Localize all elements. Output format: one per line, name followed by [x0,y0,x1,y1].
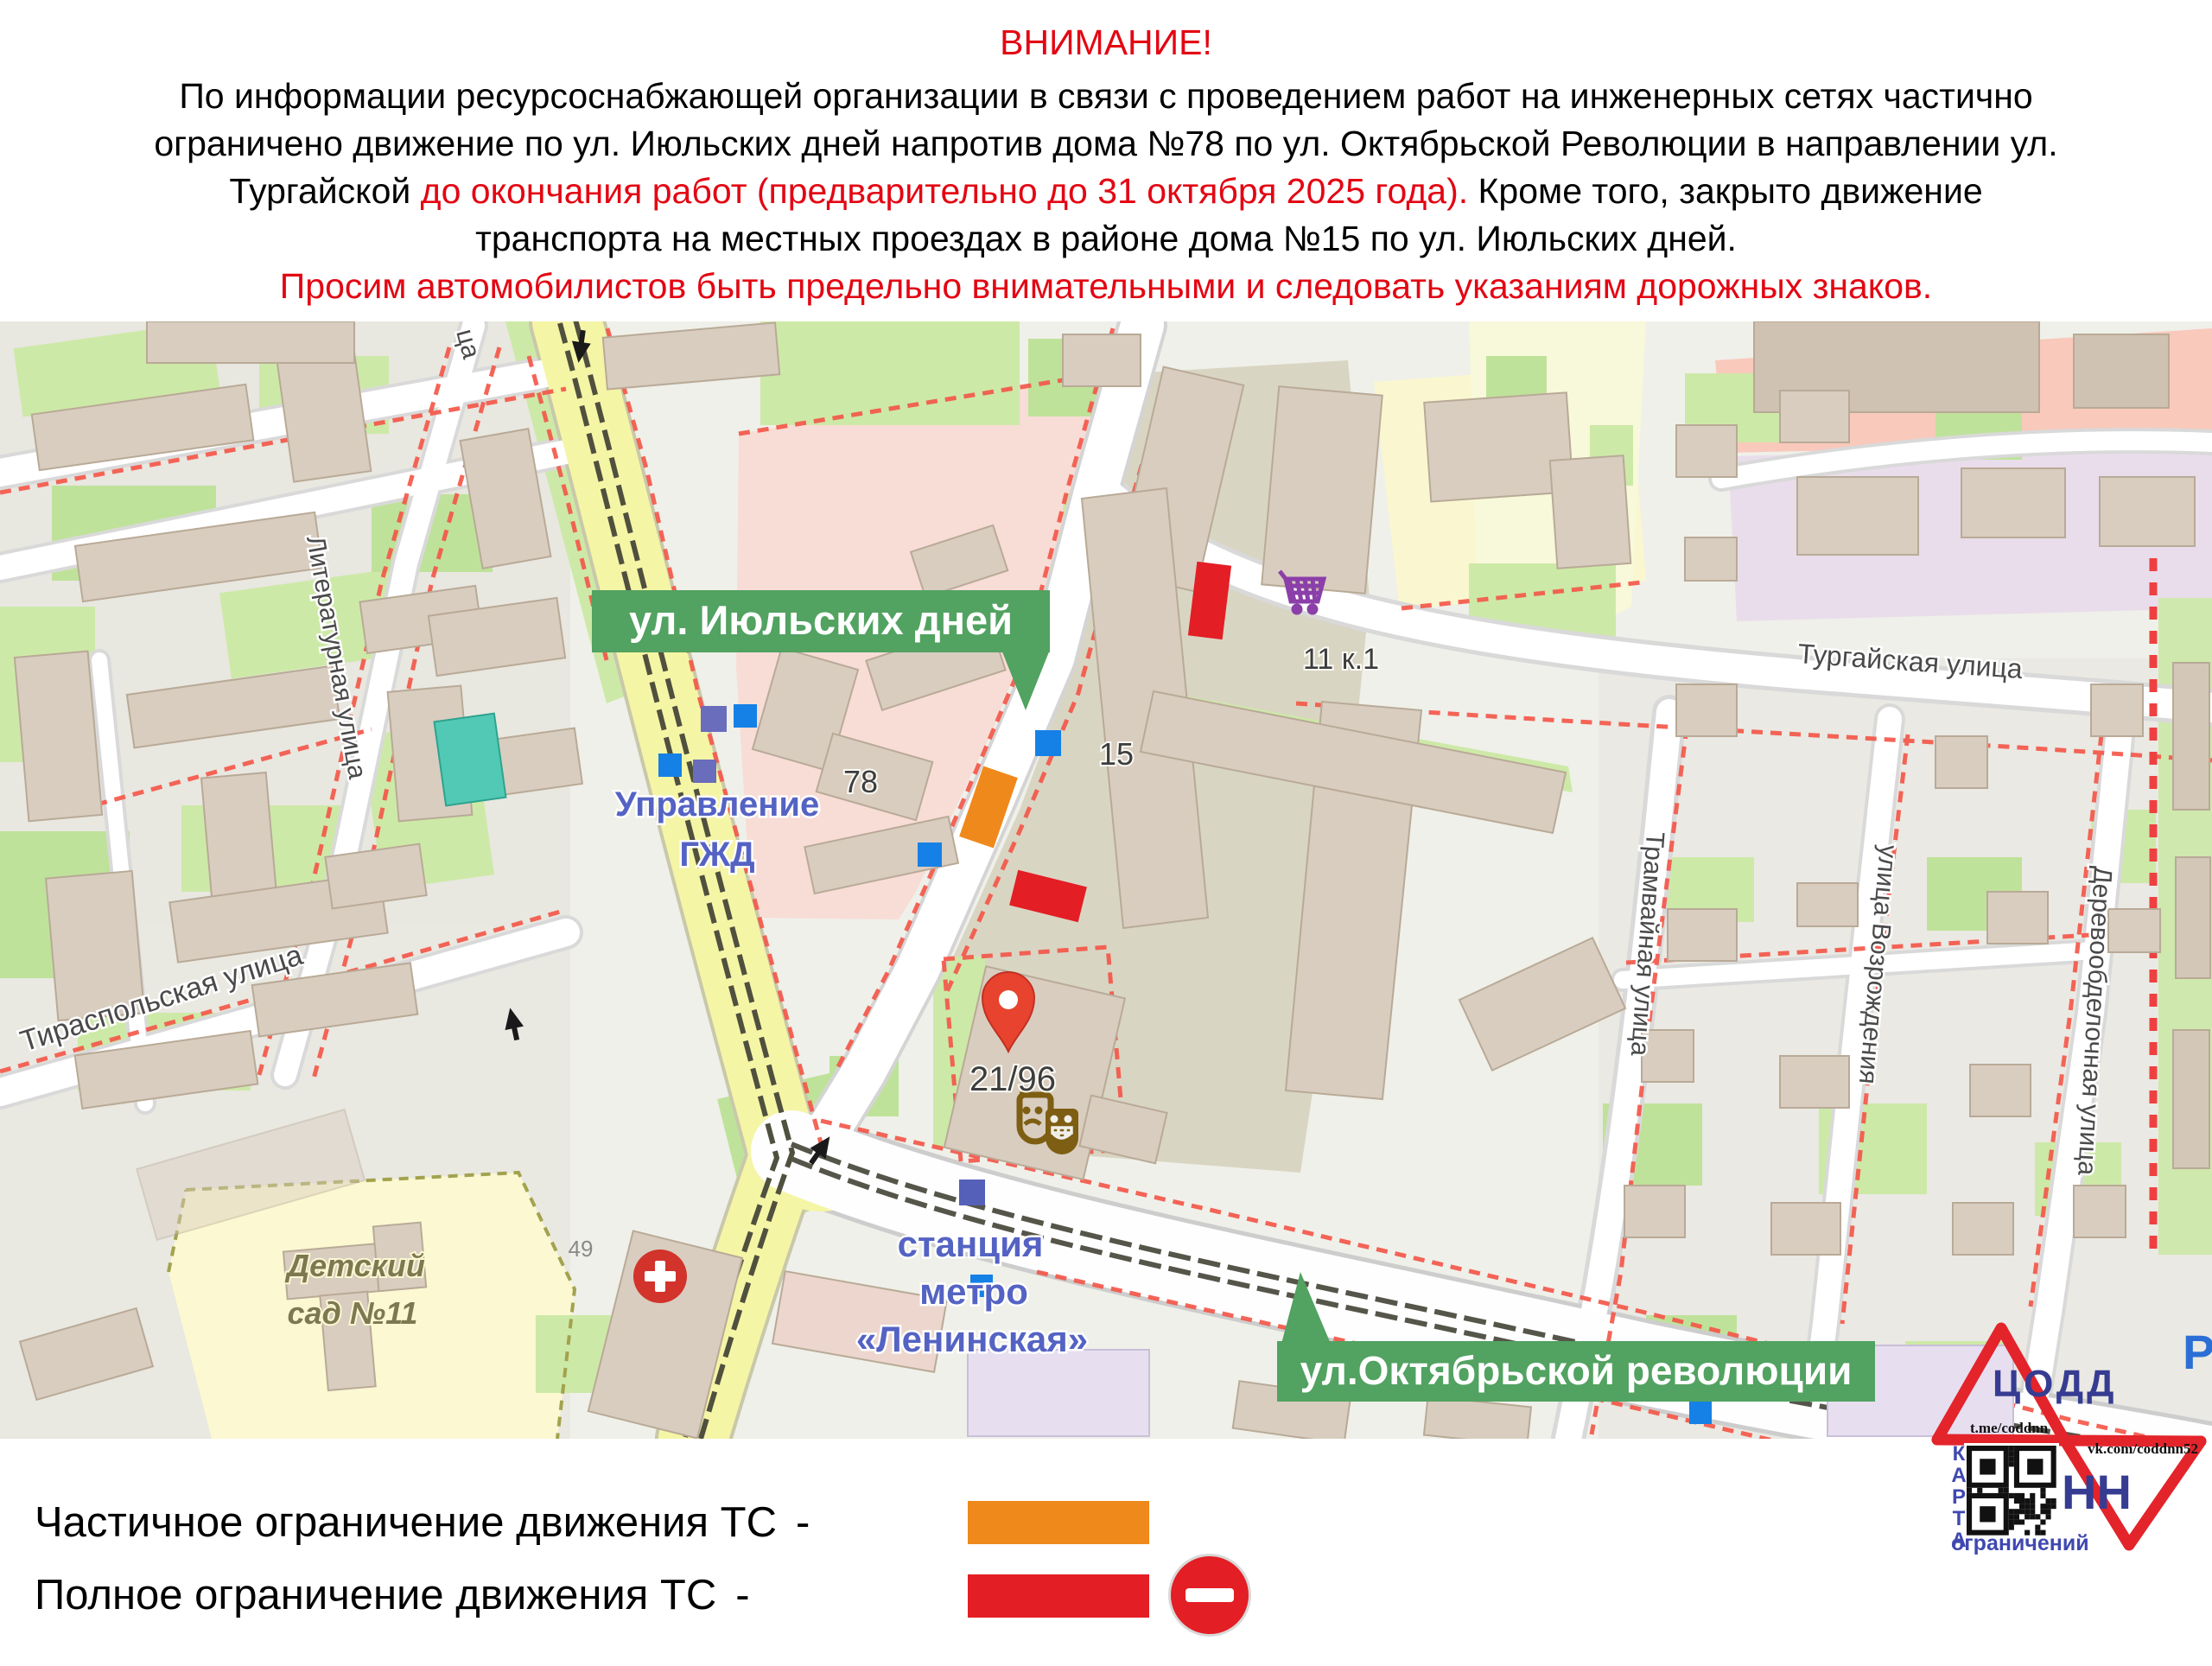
notice-line-2: ограничено движение по ул. Июльских дней… [0,120,2212,168]
logo-city-label: НН [2062,1465,2132,1519]
bus-stop-icon [1689,1402,1712,1424]
hospital-icon [633,1249,687,1303]
metro-entrance-icon [959,1180,985,1205]
legend-full-swatch [968,1574,1149,1618]
house-label-49: 49 [569,1236,594,1262]
codd-logo: ЦОДД t.me/coddnn vk.com/coddnn52 НН огра… [1925,1313,2212,1573]
bus-stop-icon [918,843,942,867]
bus-stop-icon [1035,730,1061,756]
house-label-15: 15 [1099,736,1134,772]
legend-partial-row: Частичное ограничение движения ТС - [35,1497,810,1548]
map-image: P ул. Июльских дней ул.Октябрьской револ… [0,321,2212,1439]
legend-full-label: Полное ограничение движения ТС [35,1571,716,1619]
poi-kindergarten-line1: Детский [284,1248,425,1283]
notice-title: ВНИМАНИЕ! [0,19,2212,67]
notice-line-1: По информации ресурсоснабжающей организа… [0,73,2212,120]
tram-stop-icon [701,706,727,732]
bus-stop-icon [734,704,757,728]
map-svg: P ул. Июльских дней ул.Октябрьской револ… [0,321,2212,1439]
notice-line-4: транспорта на местных проездах в районе … [0,215,2212,263]
teal-building [435,714,506,806]
legend-partial-label: Частичное ограничение движения ТС [35,1498,777,1547]
house-label-11k1: 11 к.1 [1303,643,1379,676]
house-label-78: 78 [843,764,878,799]
poi-metro-line1: станция [898,1224,1044,1264]
poi-metro-line2: метро [919,1271,1028,1312]
logo-telegram: t.me/coddnn [1970,1420,2049,1436]
house-label-2196: 21/96 [969,1060,1056,1098]
poi-upravlenie-line2: ГЖД [679,836,754,874]
notice-block: ВНИМАНИЕ! По информации ресурсоснабжающе… [0,19,2212,310]
notice-line-3: Тургайской до окончания работ (предварит… [0,168,2212,215]
street-badge-october-label: ул.Октябрьской революции [1300,1348,1853,1393]
street-badge-july-label: ул. Июльских дней [629,597,1013,643]
bus-stop-icon [658,754,682,777]
legend-partial-swatch [968,1501,1149,1544]
traffic-notice-page: ВНИМАНИЕ! По информации ресурсоснабжающе… [0,0,2212,1666]
no-entry-sign-icon [1168,1554,1251,1637]
logo-org-label: ЦОДД [1993,1363,2117,1405]
poi-metro-line3: «Ленинская» [856,1319,1088,1359]
poi-kindergarten-line2: сад №11 [288,1295,418,1331]
notice-deadline: до окончания работ (предварительно до 31… [421,171,1468,211]
logo-karta-vertical: КАРТА [1948,1443,1970,1551]
tram-stop-icon [693,760,716,783]
notice-warning-line: Просим автомобилистов быть предельно вни… [0,263,2212,310]
qr-code [1964,1443,2059,1538]
legend-dash: - [796,1498,810,1547]
legend-full-row: Полное ограничение движения ТС - [35,1569,750,1621]
logo-vk: vk.com/coddnn52 [2088,1440,2198,1457]
legend-dash: - [735,1571,749,1619]
poi-upravlenie-line1: Управление [615,785,819,823]
